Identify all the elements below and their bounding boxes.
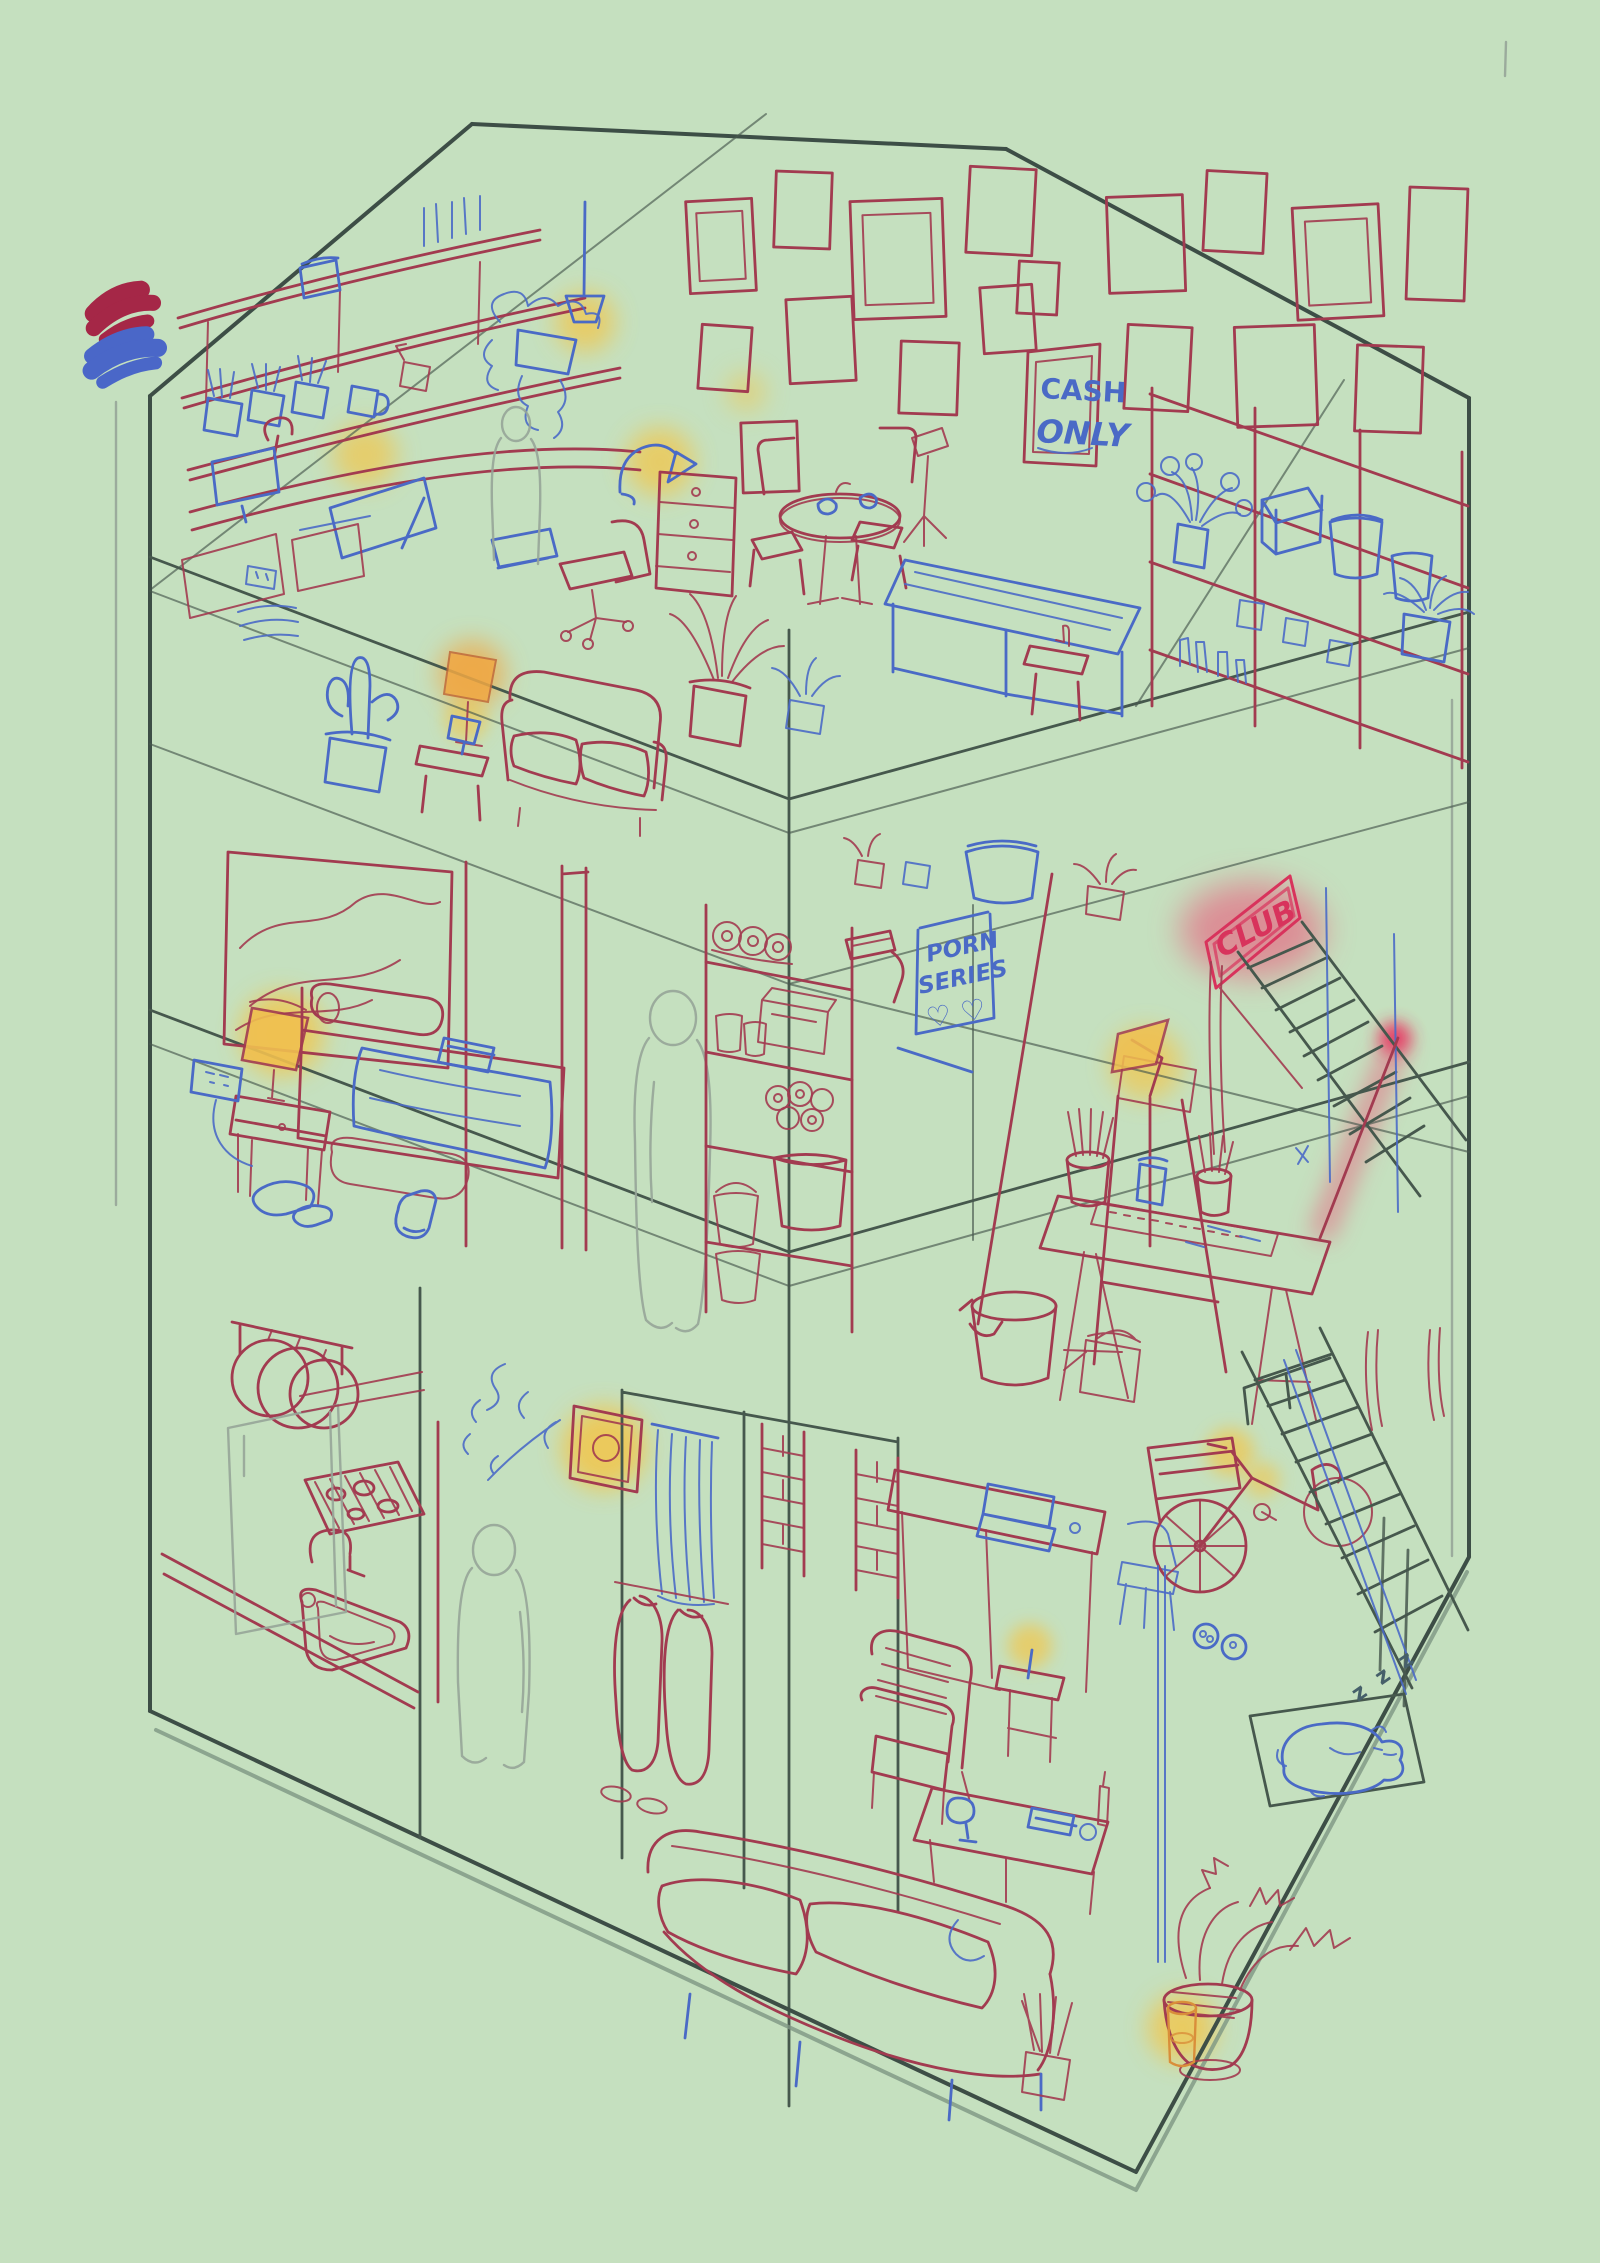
- poster-hearts: ♡ ♡: [923, 992, 988, 1035]
- wine-glass: [947, 1798, 976, 1842]
- porn-series-poster: PORN SERIES ♡ ♡: [898, 912, 1010, 1072]
- cooktop: [305, 1462, 424, 1534]
- blue-arrow: [1296, 1146, 1308, 1164]
- red-armchair: [861, 1631, 971, 1824]
- corner-clutter: [844, 834, 1136, 920]
- stray-mark: [1505, 42, 1506, 76]
- blue-pole: [1158, 1566, 1165, 1962]
- book: [1028, 1808, 1076, 1835]
- stick-pot: [1022, 1994, 1072, 2100]
- light-glows: [240, 292, 1411, 2062]
- candle-table: [996, 1650, 1064, 1762]
- house-cutaway-sketch: CASH ONLY: [0, 0, 1600, 2263]
- paint-swatches: [86, 286, 163, 384]
- music-stand: [904, 428, 948, 546]
- floor-clothes: [253, 1182, 436, 1238]
- blue-curtain: [652, 1424, 718, 1605]
- construction-line-left: [150, 114, 766, 590]
- kitchen-shelf: [300, 1372, 424, 1412]
- box: [758, 988, 836, 1054]
- wall-shelves: [178, 196, 620, 480]
- red-sofa: [502, 672, 667, 836]
- buckets: [714, 1183, 760, 1303]
- floor-attic-studio: CASH ONLY: [178, 166, 1474, 836]
- floor-ground: z z z: [162, 1322, 1468, 2120]
- ghost-figure-corridor: [635, 991, 711, 1331]
- brush-cup-right: [1197, 1133, 1233, 1216]
- mouse: [1070, 1523, 1080, 1533]
- red-curtains: [1366, 1328, 1444, 1430]
- mug: [348, 386, 388, 417]
- blue-swatch: [86, 331, 163, 385]
- cash-sign-line2: ONLY: [1036, 412, 1133, 455]
- cash-only-sign: CASH ONLY: [1024, 344, 1133, 466]
- blue-work-table: [885, 560, 1140, 716]
- brick-frames: [762, 1424, 898, 1598]
- hanging-coats: [600, 1582, 728, 1816]
- ghost-figure-kitchen: [458, 1525, 530, 1768]
- pastries: [766, 1082, 833, 1131]
- books: [424, 196, 480, 246]
- watering-can: [1064, 1330, 1140, 1402]
- vine-plant: [463, 1364, 560, 1480]
- cactus-pot: [325, 658, 398, 792]
- dog-bed: [1250, 1694, 1424, 1806]
- sink: [301, 1530, 409, 1670]
- corner-plants: [949, 1858, 1350, 2100]
- blue-ribbon: [949, 1920, 984, 1961]
- storage-shelf: [706, 905, 852, 1332]
- teapot: [836, 483, 850, 492]
- sketch-canvas: CASH ONLY: [0, 0, 1600, 2263]
- wall-outlet-attic: [246, 566, 276, 589]
- ground-staircase: [1242, 1328, 1468, 1706]
- printer: [492, 529, 557, 568]
- shelf-lamp-glow: [333, 423, 397, 487]
- potted-plants-attic: [670, 594, 840, 746]
- kitchen: [162, 1322, 438, 1708]
- bottle: [1098, 1772, 1109, 1826]
- bottom-edge: [150, 1557, 1469, 2172]
- bicycle: [1148, 1438, 1372, 1592]
- roof-slope-right: [1006, 149, 1469, 398]
- sleeping-dog: [1277, 1723, 1403, 1796]
- big-jar: [774, 1154, 846, 1230]
- drawing-board: [330, 478, 436, 558]
- counter-edge: [162, 1554, 418, 1708]
- attic-floor-edge-2: [150, 591, 1469, 833]
- cash-sign-line1: CASH: [1040, 372, 1127, 409]
- ghost-figure-attic: [492, 407, 540, 564]
- attic-floor-edge: [150, 557, 1469, 799]
- office-chair: [560, 521, 650, 649]
- floor-middle: PORN SERIES ♡ ♡: [191, 834, 1466, 1424]
- wall-outlet: [191, 1060, 252, 1166]
- bar-shelving: [1137, 388, 1474, 768]
- brush-cup-left: [1067, 1109, 1113, 1206]
- roof-ridge: [472, 124, 1006, 149]
- keyboard: [1091, 1202, 1278, 1256]
- cup: [1080, 1824, 1096, 1840]
- blue-chair: [1118, 1522, 1178, 1630]
- nightstand: [230, 1096, 330, 1204]
- paper-rolls: [712, 922, 792, 964]
- side-table-bottle: [1024, 626, 1088, 720]
- glowing-handrail: [1320, 1038, 1398, 1238]
- blue-box: [1262, 488, 1322, 554]
- red-couch: [648, 1831, 1054, 2120]
